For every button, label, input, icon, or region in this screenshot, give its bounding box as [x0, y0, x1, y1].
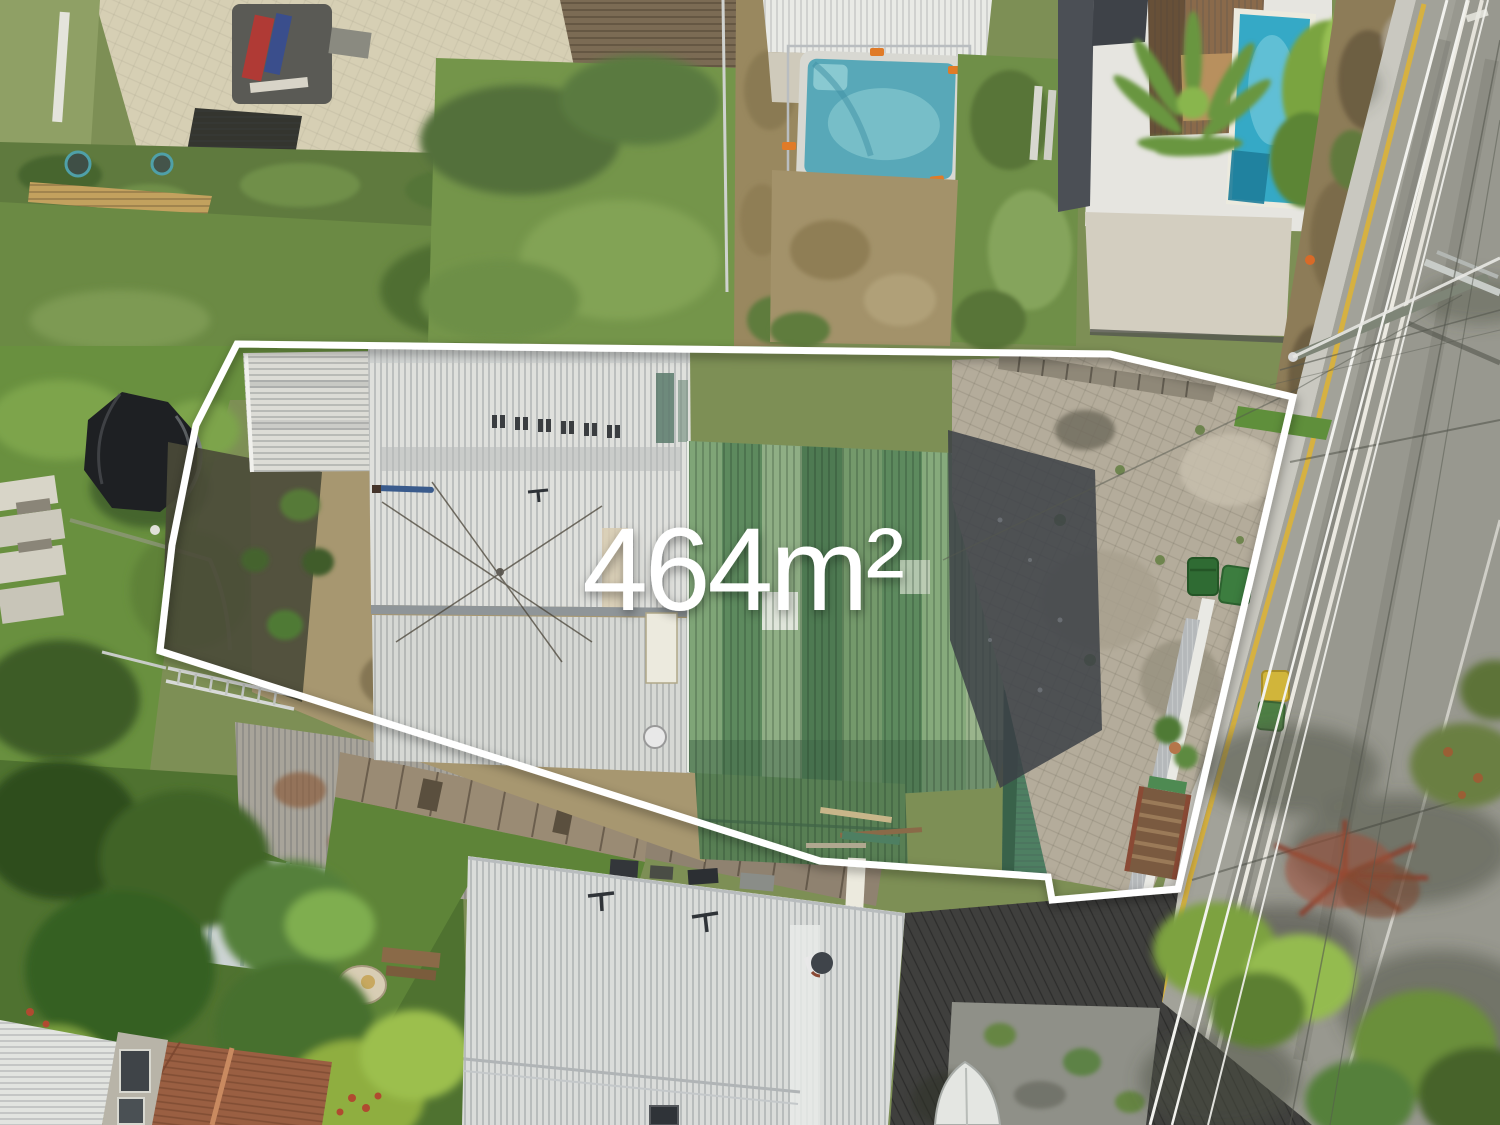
chimney — [650, 1106, 678, 1125]
round-planter — [152, 154, 172, 174]
satellite-dish — [644, 726, 666, 748]
round-planter — [66, 152, 90, 176]
orange-flower — [1305, 255, 1315, 265]
aerial-property-photo: 464m² — [0, 0, 1500, 1125]
area-label: 464m² — [582, 504, 903, 636]
concrete-pad — [1085, 212, 1292, 336]
dark-roof-strip — [1058, 0, 1094, 212]
small-round-object — [150, 525, 160, 535]
main-roof-rear — [372, 613, 690, 773]
aerial-scene: 464m² — [0, 0, 1500, 1125]
above-ground-pool — [796, 50, 965, 188]
